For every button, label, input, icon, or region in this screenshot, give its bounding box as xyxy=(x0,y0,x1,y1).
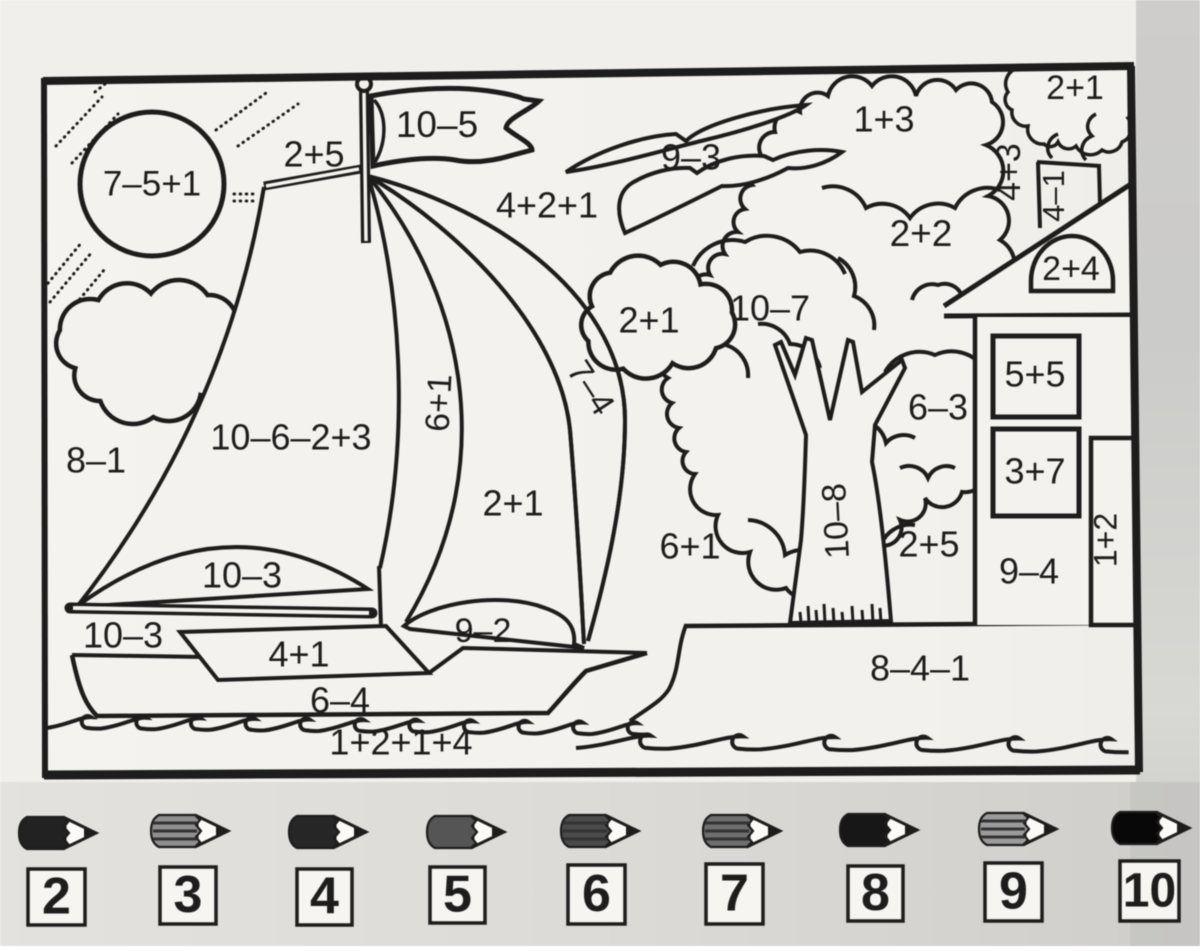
svg-text:6: 6 xyxy=(582,865,611,923)
svg-text:6–4: 6–4 xyxy=(310,680,370,721)
svg-text:4: 4 xyxy=(310,868,339,926)
svg-text:5: 5 xyxy=(443,866,472,924)
svg-text:1+3: 1+3 xyxy=(853,99,914,140)
svg-text:8: 8 xyxy=(861,864,890,922)
svg-text:9–4: 9–4 xyxy=(999,551,1059,592)
svg-text:3+7: 3+7 xyxy=(1004,451,1065,492)
svg-text:5+5: 5+5 xyxy=(1004,354,1065,395)
svg-text:2+5: 2+5 xyxy=(898,524,959,565)
svg-text:9: 9 xyxy=(999,863,1028,921)
svg-text:8–1: 8–1 xyxy=(66,440,126,481)
svg-text:2+4: 2+4 xyxy=(1042,250,1100,288)
svg-text:1+2: 1+2 xyxy=(1087,513,1123,567)
svg-text:2+2: 2+2 xyxy=(890,213,953,254)
svg-text:2+1: 2+1 xyxy=(1046,69,1104,107)
svg-text:4–1: 4–1 xyxy=(1036,170,1071,222)
svg-text:10–7: 10–7 xyxy=(730,288,810,329)
svg-text:6+1: 6+1 xyxy=(659,526,720,567)
svg-text:4+1: 4+1 xyxy=(268,634,329,675)
svg-text:3: 3 xyxy=(174,866,203,924)
svg-text:4+2+1: 4+2+1 xyxy=(496,185,598,226)
svg-text:2+1: 2+1 xyxy=(482,483,543,524)
svg-text:6+1: 6+1 xyxy=(419,373,460,433)
svg-text:7–5+1: 7–5+1 xyxy=(103,164,201,203)
svg-text:6–3: 6–3 xyxy=(908,387,968,428)
svg-text:9–2: 9–2 xyxy=(455,612,512,650)
svg-text:10–8: 10–8 xyxy=(815,482,857,560)
svg-text:9–3: 9–3 xyxy=(661,137,721,178)
svg-text:4+3: 4+3 xyxy=(990,143,1028,201)
svg-text:7: 7 xyxy=(720,865,749,923)
svg-text:10: 10 xyxy=(1123,865,1176,918)
svg-text:2+5: 2+5 xyxy=(283,134,344,175)
svg-text:10–3: 10–3 xyxy=(83,615,163,656)
svg-text:1+2+1+4: 1+2+1+4 xyxy=(329,722,472,763)
svg-text:2+1: 2+1 xyxy=(618,300,679,341)
svg-text:8–4–1: 8–4–1 xyxy=(870,648,970,689)
svg-text:10–5: 10–5 xyxy=(396,104,478,145)
svg-text:10–6–2+3: 10–6–2+3 xyxy=(210,417,371,458)
svg-text:2: 2 xyxy=(42,868,71,926)
svg-text:10–3: 10–3 xyxy=(202,555,282,596)
